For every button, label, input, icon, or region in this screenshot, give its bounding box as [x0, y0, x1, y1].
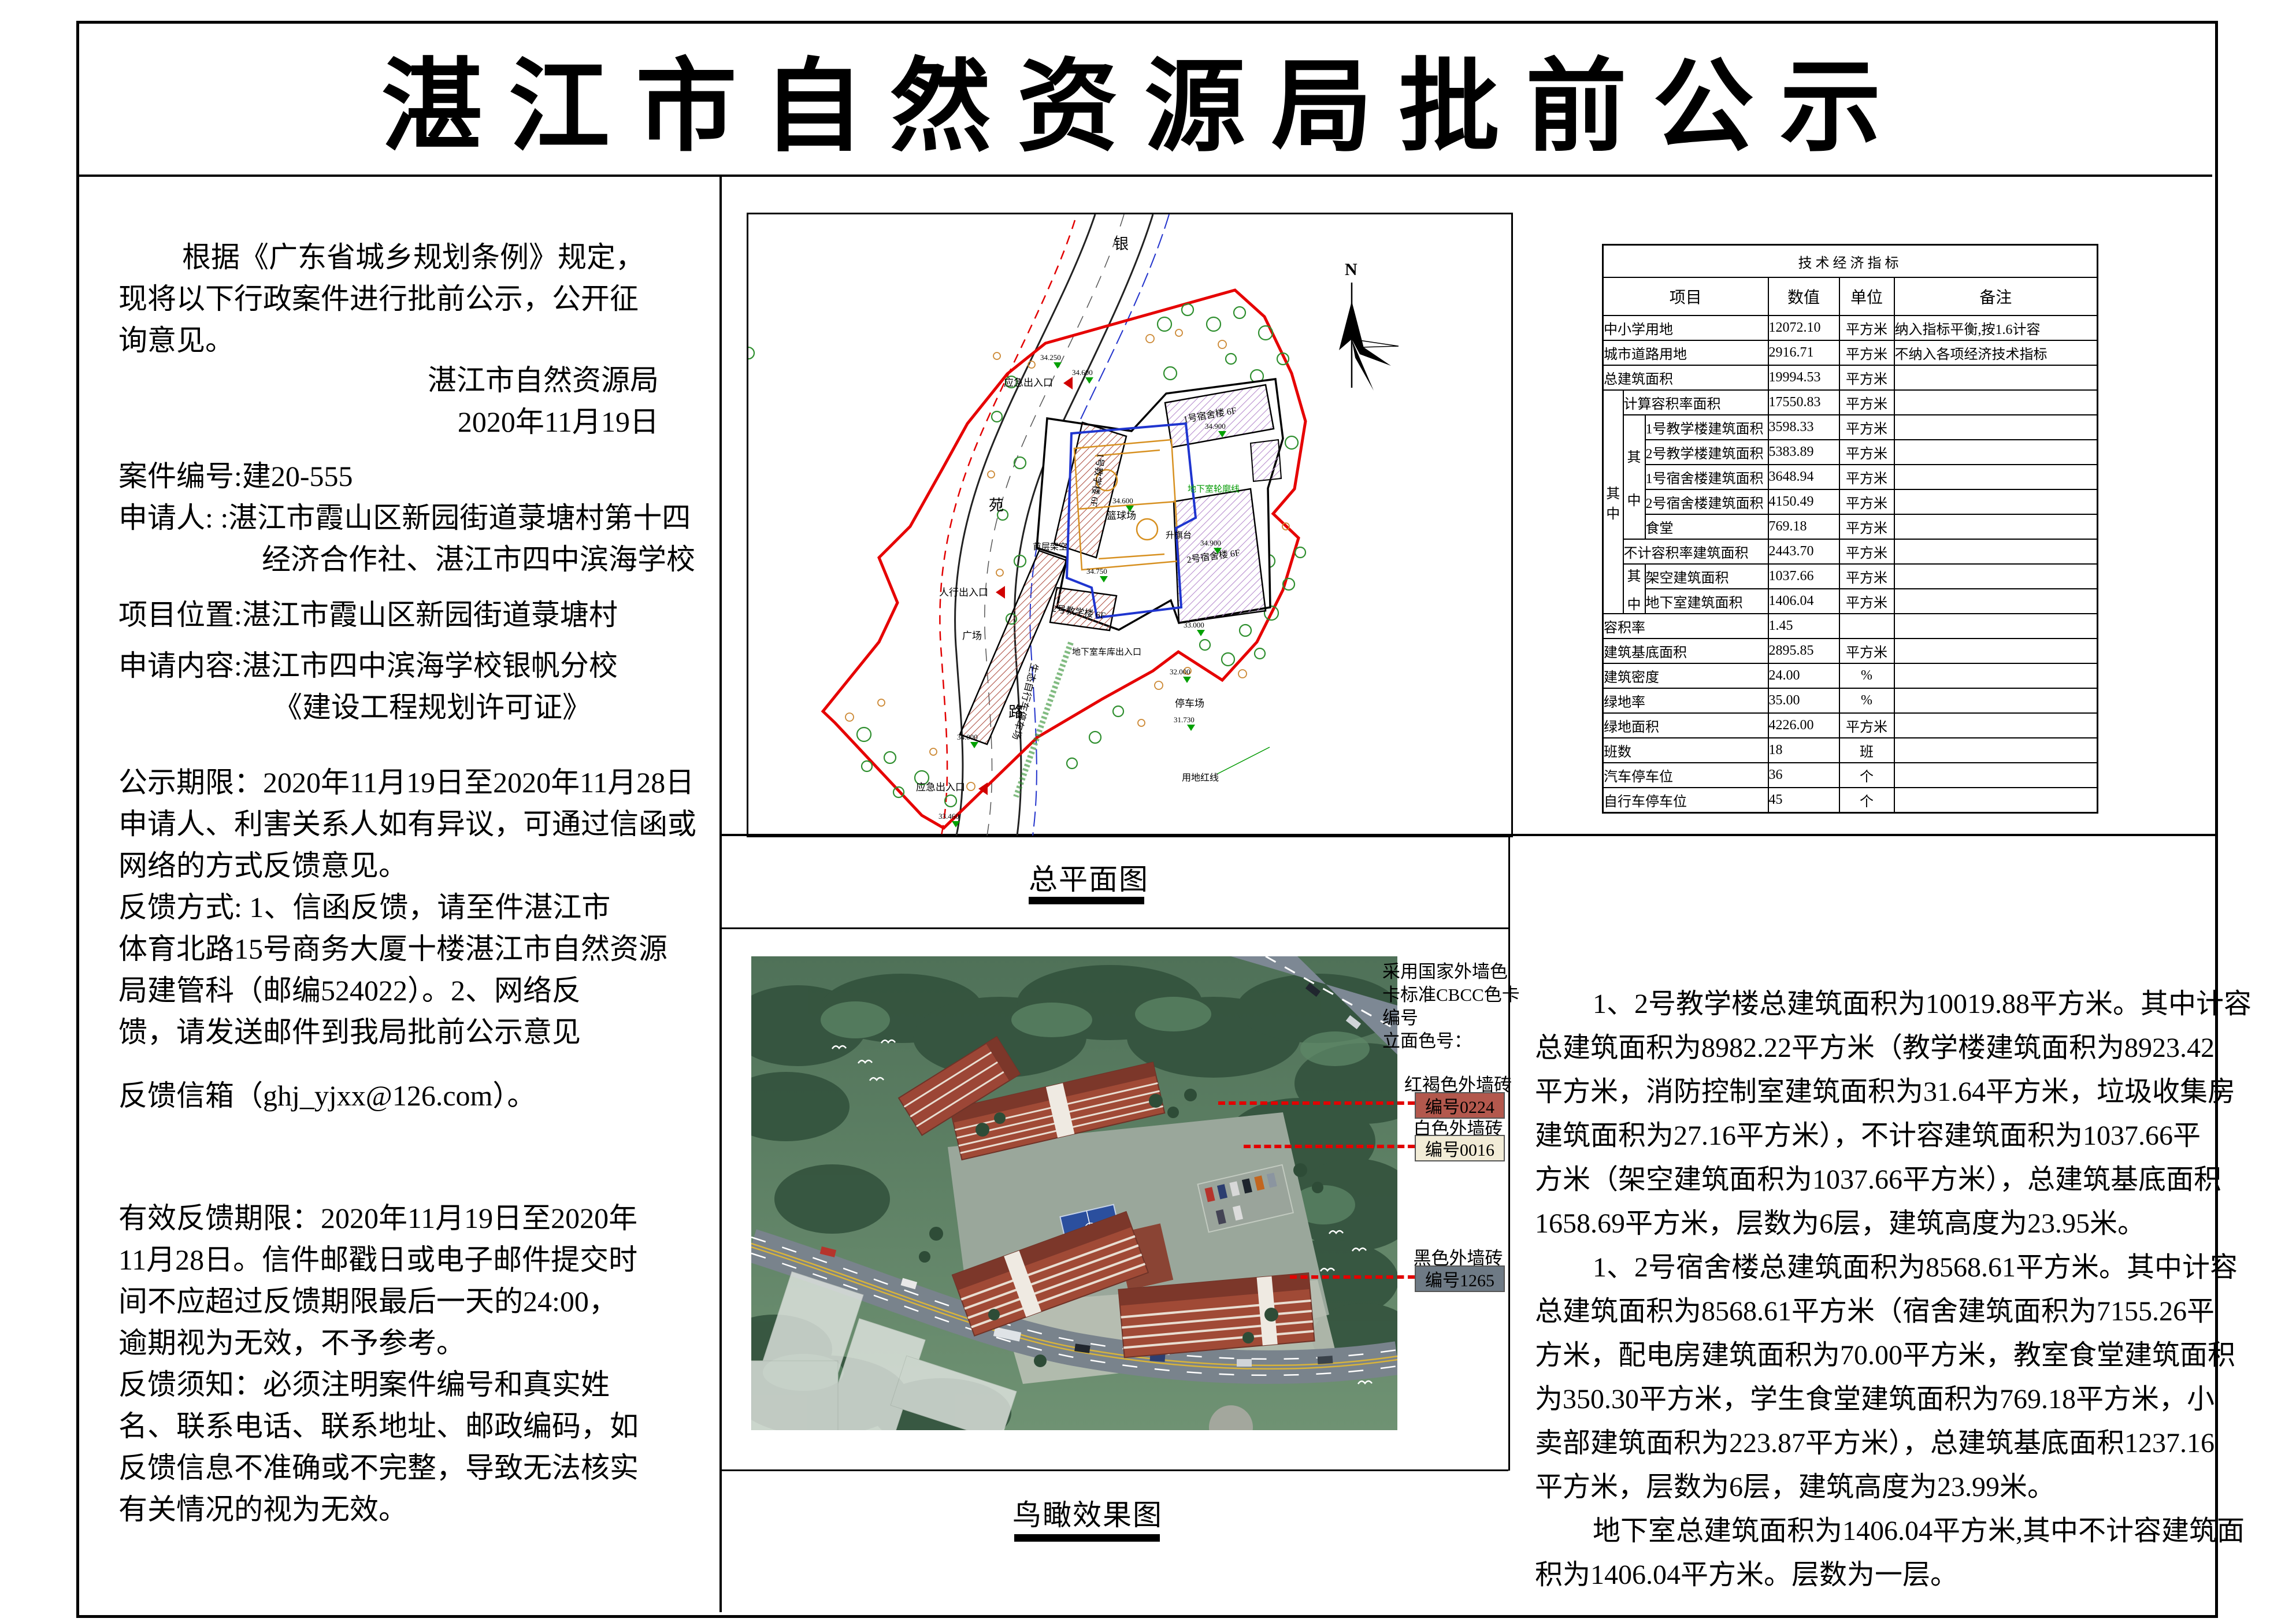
applicant-line-1: 申请人: :湛江市霞山区新园街道菉塘村第十四 — [118, 497, 719, 539]
cell-note: 纳入指标平衡,按1.6计容 — [1894, 316, 2098, 340]
main-vertical-divider — [719, 175, 722, 1612]
desc-line: 总建筑面积为8982.22平方米（教学楼建筑面积为8923.42 — [1535, 1026, 2208, 1070]
cell-note — [1894, 539, 2098, 564]
cell-unit: 班 — [1839, 738, 1894, 763]
text-line: 体育北路15号商务大厦十楼湛江市自然资源 — [118, 928, 719, 970]
cell-unit: 个 — [1839, 763, 1894, 788]
cell-note — [1894, 415, 2098, 440]
svg-text:33.000: 33.000 — [1184, 621, 1204, 629]
svg-text:34.600: 34.600 — [1072, 368, 1093, 377]
svg-text:地下室车库出入口: 地下室车库出入口 — [1072, 647, 1141, 657]
north-arrow-icon: N — [1339, 260, 1399, 391]
cell-note — [1894, 763, 2098, 788]
text-line: 有效反馈期限：2020年11月19日至2020年 — [118, 1197, 719, 1239]
svg-text:篮球场: 篮球场 — [1107, 510, 1136, 521]
table-title: 技术经济指标 — [1603, 245, 2098, 278]
cell-unit: 平方米 — [1839, 489, 1894, 514]
issue-date: 2020年11月19日 — [118, 401, 659, 443]
text-line: 公示期限：2020年11月19日至2020年11月28日 — [118, 762, 719, 803]
svg-text:34.000: 34.000 — [957, 733, 978, 741]
desc-line: 卖部建筑面积为223.87平方米），总建筑基底面积1237.16 — [1535, 1421, 2208, 1465]
cell-item: 建筑基底面积 — [1603, 639, 1768, 663]
text-line: 反馈信息不准确或不完整，导致无法核实 — [118, 1447, 719, 1489]
cell-note — [1894, 614, 2098, 639]
svg-text:广场: 广场 — [962, 630, 982, 641]
cell-value: 17550.83 — [1768, 390, 1839, 415]
cell-item: 地下室建筑面积 — [1645, 589, 1768, 614]
cell-value: 4150.49 — [1768, 489, 1839, 514]
svg-text:34.750: 34.750 — [1086, 567, 1107, 576]
table-row: 其中 架空建筑面积 1037.66 平方米 — [1603, 564, 2098, 589]
svg-text:停车场: 停车场 — [1175, 698, 1204, 709]
site-plan-drawing: N 银 苑 路 应急出入口 人行出入口 广场 生态自行车停车场 地下室车库出入口… — [748, 214, 1511, 836]
col-header-unit: 单位 — [1839, 277, 1894, 316]
cell-item: 2号教学楼建筑面积 — [1645, 440, 1768, 465]
cell-unit: 平方米 — [1839, 340, 1894, 365]
site-plan-caption-underline — [1029, 897, 1144, 904]
page-title: 湛江市自然资源局批前公示 — [381, 25, 1907, 171]
table-row: 1号宿舍楼建筑面积 3648.94 平方米 — [1603, 465, 2098, 489]
cell-unit: 平方米 — [1839, 639, 1894, 663]
applicant-line-2: 经济合作社、湛江市四中滨海学校 — [118, 539, 719, 580]
cell-value: 3648.94 — [1768, 465, 1839, 489]
case-info-block: 案件编号:建20-555 申请人: :湛江市霞山区新园街道菉塘村第十四 经济合作… — [118, 455, 719, 728]
cell-item: 食堂 — [1645, 514, 1768, 539]
cell-note — [1894, 738, 2098, 763]
desc-line: 地下室总建筑面积为1406.04平方米,其中不计容建筑面 — [1535, 1509, 2208, 1553]
cell-item: 1号教学楼建筑面积 — [1645, 415, 1768, 440]
table-row: 中小学用地 12072.10 平方米 纳入指标平衡,按1.6计容 — [1603, 316, 2098, 340]
leader-line-red — [1218, 1101, 1415, 1105]
cell-unit: 平方米 — [1839, 514, 1894, 539]
cell-note — [1894, 639, 2098, 663]
render-cell-right-border — [1508, 836, 1510, 1471]
table-row: 食堂 769.18 平方米 — [1603, 514, 2098, 539]
col-header-item: 项目 — [1603, 277, 1768, 316]
cell-unit — [1839, 614, 1894, 639]
svg-text:32.000: 32.000 — [1170, 667, 1190, 676]
text-line: 根据《广东省城乡规划条例》规定， — [118, 236, 702, 278]
permit-name: 《建设工程规划许可证》 — [118, 686, 719, 728]
cell-item: 2号宿舍楼建筑面积 — [1645, 489, 1768, 514]
cell-note — [1894, 465, 2098, 489]
cell-value: 1406.04 — [1768, 589, 1839, 614]
cell-unit: % — [1839, 688, 1894, 713]
desc-line: 方米（架空建筑面积为1037.66平方米），总建筑基底面积 — [1535, 1158, 2208, 1202]
birdseye-render-image — [751, 956, 1397, 1430]
svg-text:升旗台: 升旗台 — [1166, 530, 1192, 540]
render-drawing — [751, 956, 1397, 1430]
table-row: 建筑基底面积 2895.85 平方米 — [1603, 639, 2098, 663]
cell-item: 班数 — [1603, 738, 1768, 763]
cell-note — [1894, 713, 2098, 738]
application-content: 申请内容:湛江市四中滨海学校银帆分校 — [118, 645, 719, 686]
desc-line: 1658.69平方米，层数为6层，建筑高度为23.95米。 — [1535, 1202, 2208, 1246]
swatch-code: 编号0016 — [1425, 1135, 1494, 1161]
svg-text:34.900: 34.900 — [1205, 422, 1226, 430]
text-line: 询意见。 — [118, 320, 702, 361]
text-line: 反馈方式: 1、信函反馈，请至件湛江市 — [118, 886, 719, 928]
red-line-leader — [1218, 747, 1270, 774]
cell-value: 2895.85 — [1768, 639, 1839, 663]
signature-block: 湛江市自然资源局 2020年11月19日 — [118, 359, 659, 443]
annotation-line: 编号 — [1382, 1007, 1520, 1030]
cell-note — [1894, 440, 2098, 465]
cell-note: 不纳入各项经济技术指标 — [1894, 340, 2098, 365]
feedback-mailbox: 反馈信箱（ghj_yjxx@126.com）。 — [118, 1075, 719, 1116]
svg-text:34.250: 34.250 — [1040, 353, 1061, 362]
svg-text:银: 银 — [1114, 236, 1129, 253]
desc-line: 1、2号宿舍楼总建筑面积为8568.61平方米。其中计容 — [1535, 1246, 2208, 1290]
project-location: 项目位置:湛江市霞山区新园街道菉塘村 — [118, 594, 719, 636]
leader-line-white — [1244, 1145, 1415, 1148]
svg-text:首层架空: 首层架空 — [1033, 542, 1067, 552]
annotation-line: 采用国家外墙色 — [1382, 960, 1520, 983]
table-row: 不计容积率建筑面积 2443.70 平方米 — [1603, 539, 2098, 564]
col-header-note: 备注 — [1894, 277, 2098, 316]
leader-line-black — [1290, 1275, 1415, 1279]
svg-text:用地红线: 用地红线 — [1182, 773, 1219, 783]
group-qizhong-inner-2: 其中 — [1623, 564, 1645, 614]
text-line: 有关情况的视为无效。 — [118, 1489, 719, 1530]
site-plan-caption: 总平面图 — [1029, 856, 1149, 898]
cell-value: 35.00 — [1768, 688, 1839, 713]
text-line: 逾期视为无效，不予参考。 — [118, 1322, 719, 1364]
text-line: 网络的方式反馈意见。 — [118, 845, 719, 886]
cell-unit: 平方米 — [1839, 440, 1894, 465]
cell-unit: % — [1839, 663, 1894, 688]
swatch-code: 编号1265 — [1425, 1266, 1494, 1291]
annotation-line: 卡标准CBCC色卡 — [1382, 983, 1520, 1007]
table-row: 容积率 1.45 — [1603, 614, 2098, 639]
render-caption: 鸟瞰效果图 — [1012, 1492, 1163, 1534]
table-row: 其中 1号教学楼建筑面积 3598.33 平方米 — [1603, 415, 2098, 440]
cell-item: 1号宿舍楼建筑面积 — [1645, 465, 1768, 489]
table-row: 自行车停车位 45 个 — [1603, 788, 2098, 812]
text-line: 间不应超过反馈期限最后一天的24:00， — [118, 1280, 719, 1322]
desc-line: 为350.30平方米，学生食堂建筑面积为769.18平方米，小 — [1535, 1378, 2208, 1421]
render-caption-underline — [1014, 1534, 1160, 1542]
cell-unit: 个 — [1839, 788, 1894, 812]
cell-note — [1894, 390, 2098, 415]
cell-item: 汽车停车位 — [1603, 763, 1768, 788]
cell-item: 绿地率 — [1603, 688, 1768, 713]
cell-item: 架空建筑面积 — [1645, 564, 1768, 589]
cell-value: 45 — [1768, 788, 1839, 812]
annotation-line: 立面色号： — [1382, 1030, 1520, 1053]
text-line: 11月28日。信件邮戳日或电子邮件提交时 — [118, 1239, 719, 1280]
table-row: 城市道路用地 2916.71 平方米 不纳入各项经济技术指标 — [1603, 340, 2098, 365]
cell-item: 绿地面积 — [1603, 713, 1768, 738]
text-line: 名、联系电话、联系地址、邮政编码，如 — [118, 1405, 719, 1447]
svg-text:34.900: 34.900 — [1200, 539, 1221, 547]
cell-value: 1037.66 — [1768, 564, 1839, 589]
cell-value: 18 — [1768, 738, 1839, 763]
cell-value: 769.18 — [1768, 514, 1839, 539]
svg-text:应急出入口: 应急出入口 — [1004, 377, 1053, 388]
svg-text:应急出入口: 应急出入口 — [916, 782, 965, 793]
desc-line: 平方米，消防控制室建筑面积为31.64平方米，垃圾收集房 — [1535, 1070, 2208, 1114]
table-row: 汽车停车位 36 个 — [1603, 763, 2098, 788]
tech-econ-table: 技术经济指标 项目 数值 单位 备注 中小学用地 12072.10 平方米 纳入… — [1602, 244, 2098, 814]
svg-text:33.460: 33.460 — [939, 812, 959, 821]
cell-unit: 平方米 — [1839, 415, 1894, 440]
cell-note — [1894, 589, 2098, 614]
text-line: 现将以下行政案件进行批前公示，公开征 — [118, 278, 702, 320]
cell-unit: 平方米 — [1839, 564, 1894, 589]
group-qizhong-inner-1: 其中 — [1623, 415, 1645, 539]
cell-value: 2916.71 — [1768, 340, 1839, 365]
cell-unit: 平方米 — [1839, 316, 1894, 340]
swatch-black: 编号1265 — [1415, 1265, 1505, 1292]
desc-line: 建筑面积为27.16平方米），不计容建筑面积为1037.66平 — [1535, 1114, 2208, 1158]
swatch-white: 编号0016 — [1415, 1135, 1505, 1161]
cell-unit: 平方米 — [1839, 390, 1894, 415]
cell-note — [1894, 564, 2098, 589]
cell-value: 3598.33 — [1768, 415, 1839, 440]
issuer-name: 湛江市自然资源局 — [118, 359, 659, 401]
text-line: 反馈须知：必须注明案件编号和真实姓 — [118, 1364, 719, 1405]
desc-line: 总建筑面积为8568.61平方米（宿舍建筑面积为7155.26平 — [1535, 1290, 2208, 1334]
table-row: 2号教学楼建筑面积 5383.89 平方米 — [1603, 440, 2098, 465]
table-row: 绿地面积 4226.00 平方米 — [1603, 713, 2098, 738]
table-row: 2号宿舍楼建筑面积 4150.49 平方米 — [1603, 489, 2098, 514]
indicator-table: 技术经济指标 项目 数值 单位 备注 中小学用地 12072.10 平方米 纳入… — [1602, 244, 2098, 814]
table-row: 绿地率 35.00 % — [1603, 688, 2098, 713]
cell-value: 36 — [1768, 763, 1839, 788]
cell-unit: 平方米 — [1839, 589, 1894, 614]
cell-value: 1.45 — [1768, 614, 1839, 639]
cell-unit: 平方米 — [1839, 539, 1894, 564]
cell-note — [1894, 514, 2098, 539]
text-line: 馈，请发送邮件到我局批前公示意见 — [118, 1011, 719, 1053]
case-number: 案件编号:建20-555 — [118, 455, 719, 497]
table-row: 其中 计算容积率面积 17550.83 平方米 — [1603, 390, 2098, 415]
svg-text:31.730: 31.730 — [1174, 715, 1195, 724]
building-dorm1-annex — [1251, 440, 1281, 481]
table-row: 总建筑面积 19994.53 平方米 — [1603, 365, 2098, 390]
render-cell-top-border — [722, 927, 1508, 929]
cell-item: 计算容积率面积 — [1623, 390, 1768, 415]
cell-value: 5383.89 — [1768, 440, 1839, 465]
color-annotation-block: 采用国家外墙色 卡标准CBCC色卡 编号 立面色号： — [1382, 960, 1520, 1053]
cell-item: 城市道路用地 — [1603, 340, 1768, 365]
cell-note — [1894, 489, 2098, 514]
table-row: 地下室建筑面积 1406.04 平方米 — [1603, 589, 2098, 614]
title-bar: 湛江市自然资源局批前公示 — [76, 21, 2212, 177]
text-line: 局建管科（邮编524022）。2、网络反 — [118, 970, 719, 1011]
cell-unit: 平方米 — [1839, 365, 1894, 390]
cell-unit: 平方米 — [1839, 465, 1894, 489]
cell-item: 自行车停车位 — [1603, 788, 1768, 812]
cell-item: 中小学用地 — [1603, 316, 1768, 340]
cell-value: 2443.70 — [1768, 539, 1839, 564]
desc-line: 积为1406.04平方米。层数为一层。 — [1535, 1553, 2208, 1597]
render-cell-bottom-border — [722, 1469, 1508, 1471]
cell-value: 4226.00 — [1768, 713, 1839, 738]
table-row: 班数 18 班 — [1603, 738, 2098, 763]
text-line: 申请人、利害关系人如有异议，可通过信函或 — [118, 803, 719, 845]
site-plan-panel: N 银 苑 路 应急出入口 人行出入口 广场 生态自行车停车场 地下室车库出入口… — [747, 213, 1513, 837]
publicity-period-block: 公示期限：2020年11月19日至2020年11月28日 申请人、利害关系人如有… — [118, 762, 719, 1116]
cell-note — [1894, 688, 2098, 713]
cell-value: 19994.53 — [1768, 365, 1839, 390]
svg-text:地下室轮廓线: 地下室轮廓线 — [1188, 484, 1240, 494]
table-row: 建筑密度 24.00 % — [1603, 663, 2098, 688]
intro-paragraph: 根据《广东省城乡规划条例》规定， 现将以下行政案件进行批前公示，公开征 询意见。 — [118, 236, 702, 361]
col-header-value: 数值 — [1768, 277, 1839, 316]
cell-item: 不计容积率建筑面积 — [1623, 539, 1768, 564]
cell-note — [1894, 663, 2098, 688]
desc-line: 1、2号教学楼总建筑面积为10019.88平方米。其中计容 — [1535, 982, 2208, 1026]
description-block: 1、2号教学楼总建筑面积为10019.88平方米。其中计容 总建筑面积为8982… — [1535, 982, 2208, 1597]
svg-text:N: N — [1345, 260, 1357, 279]
desc-line: 平方米，层数为6层，建筑高度为23.99米。 — [1535, 1465, 2208, 1509]
cell-value: 12072.10 — [1768, 316, 1839, 340]
svg-text:34.600: 34.600 — [1112, 496, 1133, 505]
cell-note — [1894, 788, 2098, 812]
cell-value: 24.00 — [1768, 663, 1839, 688]
cell-item: 容积率 — [1603, 614, 1768, 639]
cell-note — [1894, 365, 2098, 390]
cell-unit: 平方米 — [1839, 713, 1894, 738]
deadline-block: 有效反馈期限：2020年11月19日至2020年 11月28日。信件邮戳日或电子… — [118, 1197, 719, 1530]
cell-item: 建筑密度 — [1603, 663, 1768, 688]
svg-text:人行出入口: 人行出入口 — [939, 587, 988, 598]
svg-text:苑: 苑 — [989, 497, 1004, 514]
group-qizhong-outer: 其中 — [1603, 390, 1623, 614]
cell-item: 总建筑面积 — [1603, 365, 1768, 390]
desc-line: 方米，配电房建筑面积为70.00平方米，教室食堂建筑面积 — [1535, 1334, 2208, 1378]
